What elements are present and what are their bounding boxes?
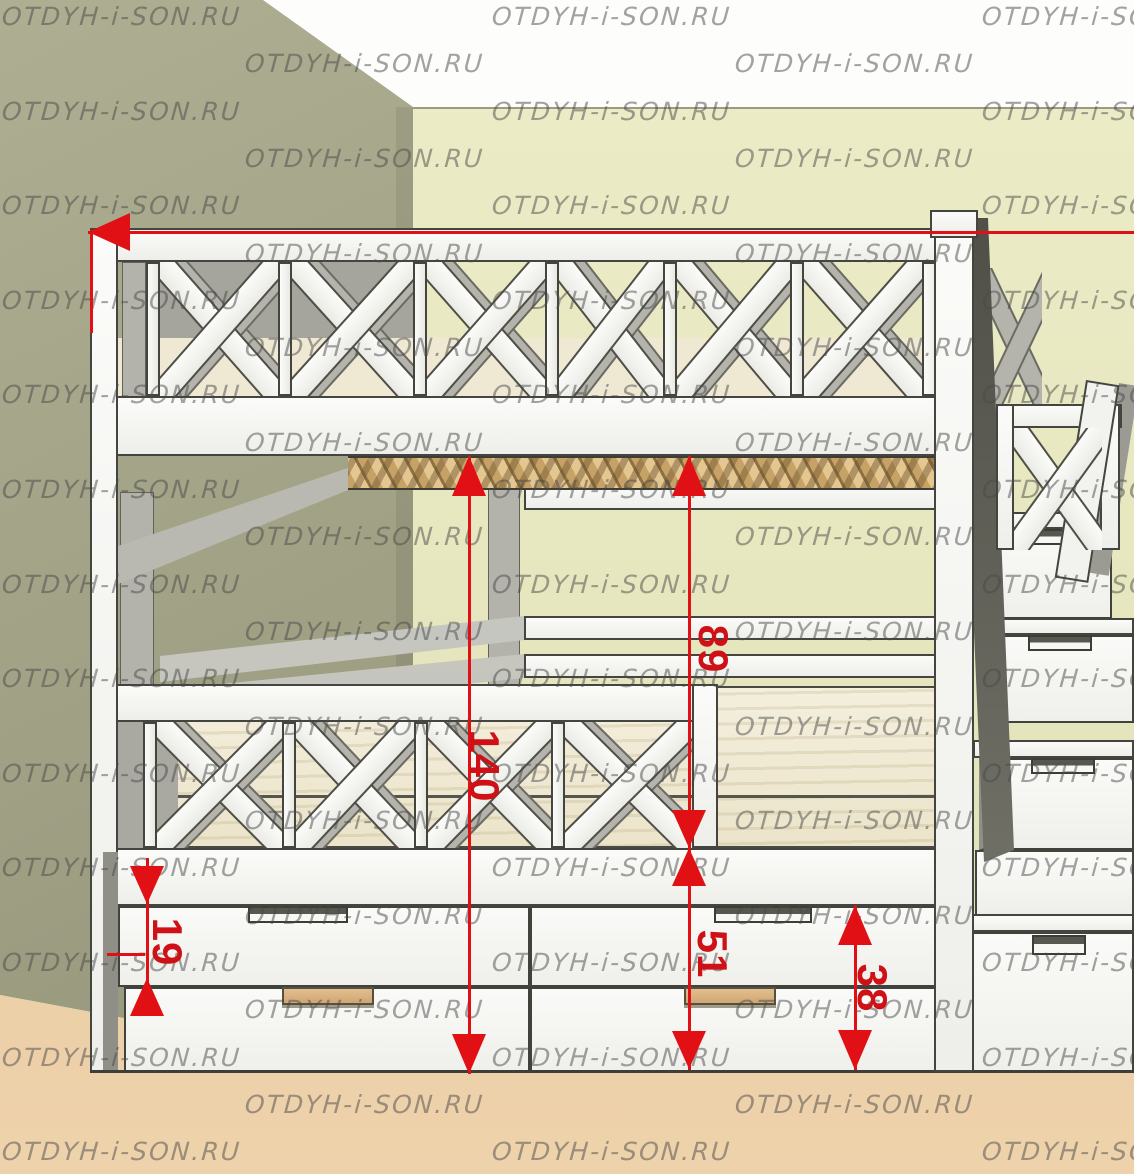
dimension-label-upper-clearance: 89 xyxy=(690,589,736,709)
x-brace-panel xyxy=(160,262,278,396)
guard-mullion xyxy=(790,262,804,396)
watermark-text: OTDYH-i-SON.RU xyxy=(244,333,485,362)
upper-back-post xyxy=(122,262,146,398)
guard-mullion xyxy=(146,262,160,396)
watermark-text: OTDYH-i-SON.RU xyxy=(491,380,732,409)
dimension-line-top-width xyxy=(88,231,1134,234)
watermark-text: OTDYH-i-SON.RU xyxy=(1,475,242,504)
watermark-text: OTDYH-i-SON.RU xyxy=(491,286,732,315)
watermark-text: OTDYH-i-SON.RU xyxy=(491,97,732,126)
dimension-tick xyxy=(107,953,145,956)
watermark-text: OTDYH-i-SON.RU xyxy=(981,1043,1134,1072)
watermark-text: OTDYH-i-SON.RU xyxy=(1,380,242,409)
dimension-label-drawer-block: 38 xyxy=(849,928,895,1048)
watermark-text: OTDYH-i-SON.RU xyxy=(1,853,242,882)
watermark-text: OTDYH-i-SON.RU xyxy=(1,759,242,788)
watermark-text: OTDYH-i-SON.RU xyxy=(734,333,975,362)
watermark-text: OTDYH-i-SON.RU xyxy=(981,286,1134,315)
guard-mullion xyxy=(278,262,292,396)
watermark-text: OTDYH-i-SON.RU xyxy=(981,948,1134,977)
watermark-text: OTDYH-i-SON.RU xyxy=(1,97,242,126)
watermark-text: OTDYH-i-SON.RU xyxy=(244,712,485,741)
watermark-text: OTDYH-i-SON.RU xyxy=(244,806,485,835)
watermark-text: OTDYH-i-SON.RU xyxy=(244,144,485,173)
watermark-text: OTDYH-i-SON.RU xyxy=(734,522,975,551)
watermark-text: OTDYH-i-SON.RU xyxy=(981,475,1134,504)
dimension-extension-left xyxy=(90,231,93,333)
watermark-text: OTDYH-i-SON.RU xyxy=(981,664,1134,693)
watermark-text: OTDYH-i-SON.RU xyxy=(244,428,485,457)
watermark-text: OTDYH-i-SON.RU xyxy=(981,759,1134,788)
watermark-text: OTDYH-i-SON.RU xyxy=(244,239,485,268)
watermark-text: OTDYH-i-SON.RU xyxy=(981,1137,1134,1166)
watermark-text: OTDYH-i-SON.RU xyxy=(981,380,1134,409)
watermark-text: OTDYH-i-SON.RU xyxy=(1,1043,242,1072)
x-brace-panel xyxy=(804,262,922,396)
watermark-text: OTDYH-i-SON.RU xyxy=(244,617,485,646)
dimension-arrow-down xyxy=(672,1031,706,1069)
dimension-label-total-height: 140 xyxy=(461,706,507,826)
watermark-text: OTDYH-i-SON.RU xyxy=(981,2,1134,31)
watermark-text: OTDYH-i-SON.RU xyxy=(1,286,242,315)
watermark-text: OTDYH-i-SON.RU xyxy=(734,144,975,173)
guard-mullion xyxy=(545,262,559,396)
watermark-text: OTDYH-i-SON.RU xyxy=(1,2,242,31)
guard-mullion xyxy=(413,262,427,396)
watermark-text: OTDYH-i-SON.RU xyxy=(491,759,732,788)
guard-mullion xyxy=(663,262,677,396)
dimension-label-drawer-height: 19 xyxy=(144,882,190,1002)
watermark-text: OTDYH-i-SON.RU xyxy=(1,1137,242,1166)
watermark-text: OTDYH-i-SON.RU xyxy=(734,1090,975,1119)
watermark-text: OTDYH-i-SON.RU xyxy=(244,1090,485,1119)
x-brace-panel xyxy=(559,262,663,396)
watermark-text: OTDYH-i-SON.RU xyxy=(244,522,485,551)
x-brace-panel xyxy=(677,262,790,396)
watermark-text: OTDYH-i-SON.RU xyxy=(981,191,1134,220)
dimension-arrow-down xyxy=(452,1034,486,1074)
watermark-text: OTDYH-i-SON.RU xyxy=(244,49,485,78)
watermark-text: OTDYH-i-SON.RU xyxy=(1,570,242,599)
watermark-text: OTDYH-i-SON.RU xyxy=(734,806,975,835)
watermark-text: OTDYH-i-SON.RU xyxy=(491,191,732,220)
stair-drawer-handle-slot xyxy=(1028,635,1092,651)
watermark-text: OTDYH-i-SON.RU xyxy=(244,995,485,1024)
watermark-text: OTDYH-i-SON.RU xyxy=(981,97,1134,126)
watermark-text: OTDYH-i-SON.RU xyxy=(734,49,975,78)
dimension-arrow-left xyxy=(88,213,130,251)
stair-step-tread xyxy=(956,914,1134,932)
watermark-text: OTDYH-i-SON.RU xyxy=(734,712,975,741)
watermark-text: OTDYH-i-SON.RU xyxy=(1,664,242,693)
watermark-text: OTDYH-i-SON.RU xyxy=(981,570,1134,599)
watermark-text: OTDYH-i-SON.RU xyxy=(734,617,975,646)
dimension-arrow-up xyxy=(672,848,706,886)
watermark-text: OTDYH-i-SON.RU xyxy=(734,239,975,268)
x-brace-panel xyxy=(427,262,545,396)
watermark-text: OTDYH-i-SON.RU xyxy=(734,428,975,457)
dimension-arrow-down xyxy=(672,810,706,848)
dimension-arrow-up xyxy=(452,456,486,496)
watermark-text: OTDYH-i-SON.RU xyxy=(491,1137,732,1166)
watermark-text: OTDYH-i-SON.RU xyxy=(244,901,485,930)
dimension-arrow-up xyxy=(672,456,706,496)
watermark-text: OTDYH-i-SON.RU xyxy=(491,2,732,31)
dimension-label-lower-clearance: 51 xyxy=(689,894,735,1014)
bunk-bed-dimension-diagram: 140 89 51 19 38 OTDYH-i-SON.RUOTDYH-i-SO… xyxy=(0,0,1134,1174)
watermark-text: OTDYH-i-SON.RU xyxy=(981,853,1134,882)
x-brace-panel xyxy=(292,262,413,396)
